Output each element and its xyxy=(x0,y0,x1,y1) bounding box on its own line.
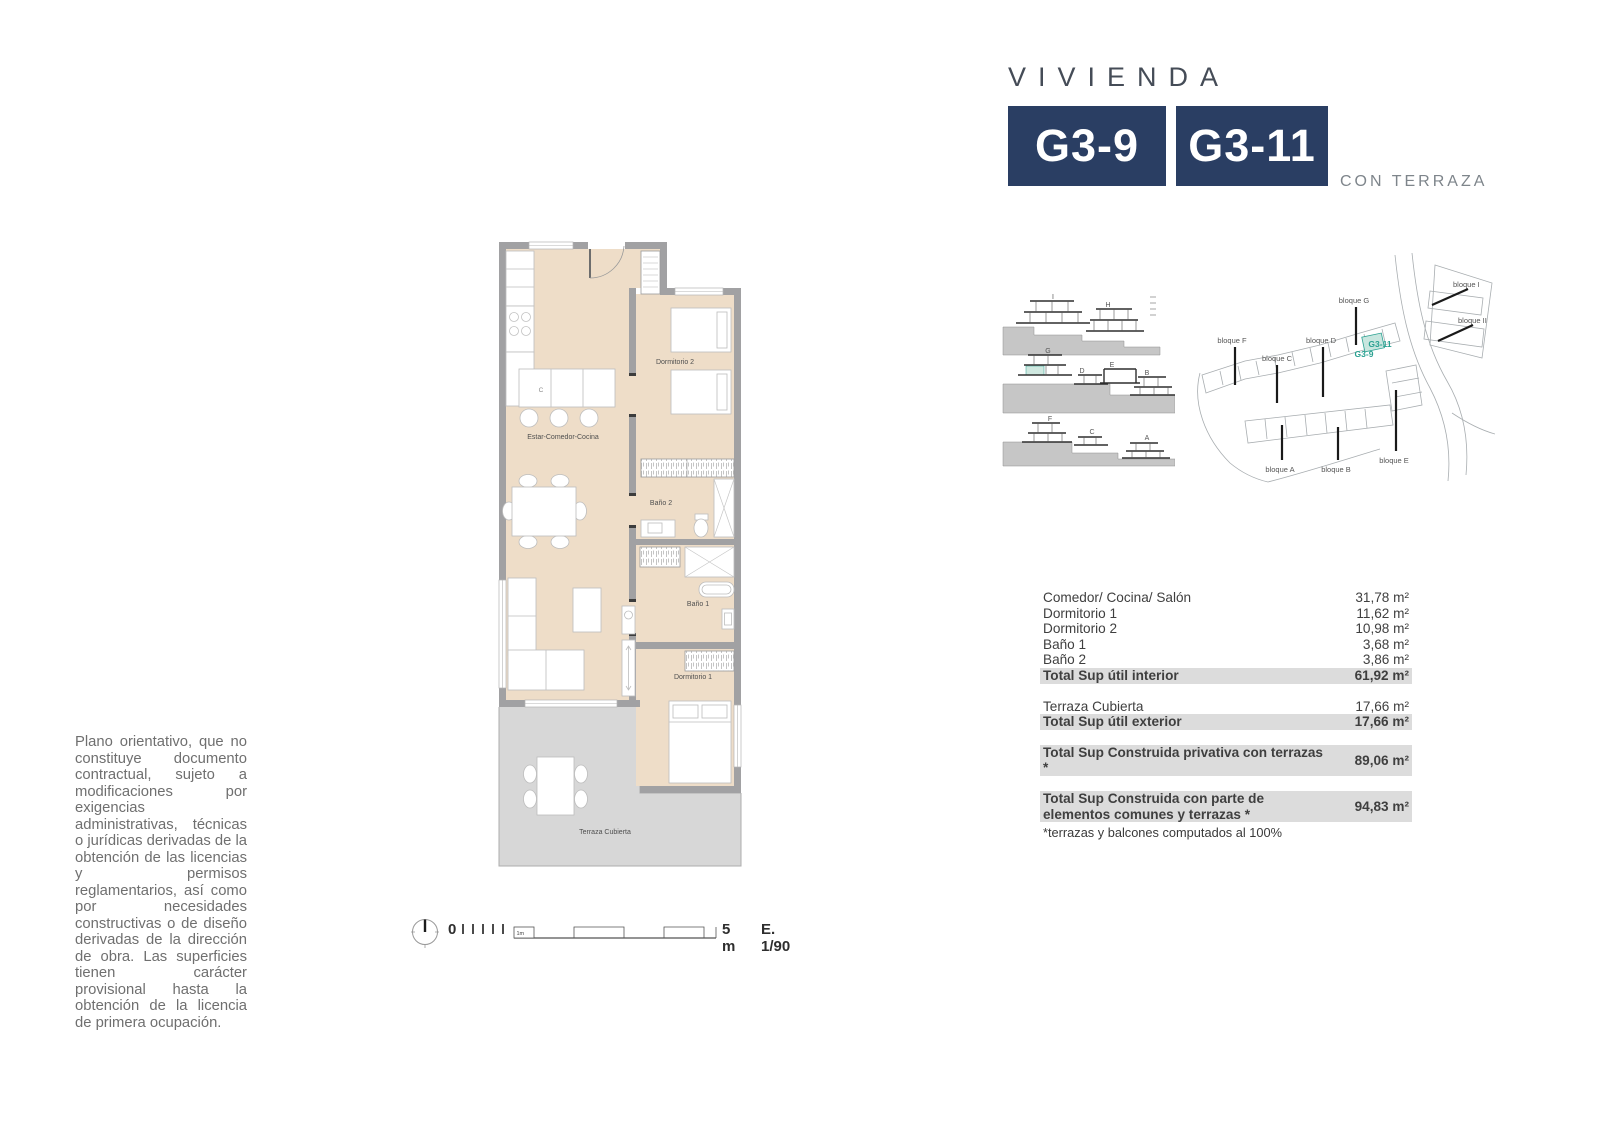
scale-five-meters: 5 m xyxy=(722,921,735,955)
elevation-label: B xyxy=(1145,370,1150,377)
bedroom2-wardrobe xyxy=(641,459,734,477)
room-label-terrace: Terraza Cubierta xyxy=(579,829,631,836)
table-row-total-privativa: Total Sup Construida privativa con terra… xyxy=(1040,745,1412,776)
table-row-total-interior: Total Sup útil interior61,92 m² xyxy=(1040,668,1412,684)
table-row: Dormitorio 210,98 m² xyxy=(1040,621,1412,637)
unit-badge-g3-9: G3-9 xyxy=(1008,106,1166,186)
block-label: bloque F xyxy=(1217,336,1247,345)
scale-ticks xyxy=(462,924,504,934)
table-footnote: *terrazas y balcones computados al 100% xyxy=(1040,825,1412,840)
hall-wardrobe xyxy=(640,547,680,567)
disclaimer-text: Plano orientativo, que no constituye doc… xyxy=(75,734,247,1031)
elevation-label: F xyxy=(1048,416,1052,423)
scale-ratio: E. 1/90 xyxy=(761,921,790,955)
elevation-row2: G D E B xyxy=(1003,348,1175,413)
page-title: VIVIENDA xyxy=(1008,62,1328,93)
room-label-bath1: Baño 1 xyxy=(687,601,709,608)
entry-closet xyxy=(641,251,660,294)
area-table: Comedor/ Cocina/ Salón31,78 m² Dormitori… xyxy=(1040,590,1412,840)
unit-badge-g3-11: G3-11 xyxy=(1176,106,1328,186)
block-label: bloque G xyxy=(1339,296,1370,305)
table-row: Comedor/ Cocina/ Salón31,78 m² xyxy=(1040,590,1412,606)
table-row: Baño 23,86 m² xyxy=(1040,652,1412,668)
block-label: bloque E xyxy=(1379,456,1409,465)
unit-map-label-g3-9: G3-9 xyxy=(1355,349,1374,359)
block-label: bloque I xyxy=(1453,280,1480,289)
block-label: bloque D xyxy=(1306,336,1337,345)
table-row: Dormitorio 111,62 m² xyxy=(1040,606,1412,622)
site-map: bloque G bloque F bloque C bloque D bloq… xyxy=(1190,253,1495,485)
elevation-label: C xyxy=(1089,429,1094,436)
room-label-bedroom1: Dormitorio 1 xyxy=(674,674,712,681)
elevation-label: E xyxy=(1110,362,1115,369)
block-label: bloque C xyxy=(1262,354,1293,363)
unit-badges: G3-9 G3-11 xyxy=(1008,106,1328,186)
unit-map-label-g3-11: G3-11 xyxy=(1368,339,1391,349)
table-row: Baño 13,68 m² xyxy=(1040,637,1412,653)
table-row-total-comunes: Total Sup Construida con parte de elemen… xyxy=(1040,791,1412,822)
block-label: bloque A xyxy=(1265,465,1294,474)
elevation-label: I xyxy=(1052,294,1054,301)
table-row-total-exterior: Total Sup útil exterior17,66 m² xyxy=(1040,714,1412,730)
elevation-label: D xyxy=(1079,368,1084,375)
subtitle-con-terraza: CON TERRAZA xyxy=(1340,173,1476,191)
graphic-scale: 1m xyxy=(513,918,718,942)
room-label-living: Estar-Comedor-Cocina xyxy=(527,434,599,441)
elevation-row3: F C A xyxy=(1003,416,1175,466)
scale-one-meter: 1m xyxy=(517,931,525,937)
table-row: Terraza Cubierta17,66 m² xyxy=(1040,699,1412,715)
floor-plan: C xyxy=(495,238,742,867)
site-linework xyxy=(1198,253,1495,482)
block-label: bloque II xyxy=(1458,316,1487,325)
room-label-bath2: Baño 2 xyxy=(650,500,672,507)
scale-zero: 0 xyxy=(448,921,456,938)
header: VIVIENDA G3-9 G3-11 xyxy=(1008,62,1328,186)
plan-sheet: VIVIENDA G3-9 G3-11 CON TERRAZA xyxy=(0,0,1600,1133)
bedroom1-furniture xyxy=(669,701,731,783)
elevation-label: A xyxy=(1145,435,1150,442)
elevation-diagram: I H G D E B F C A xyxy=(1000,283,1175,468)
elevation-row1: I H xyxy=(1003,294,1160,355)
north-arrow-icon xyxy=(407,913,443,949)
elevation-label: G xyxy=(1045,348,1050,355)
elevation-label: H xyxy=(1105,302,1110,309)
bedroom1-wardrobe xyxy=(685,651,734,671)
room-label-bedroom2: Dormitorio 2 xyxy=(656,359,694,366)
block-label: bloque B xyxy=(1321,465,1351,474)
counter-label: C xyxy=(539,387,544,394)
